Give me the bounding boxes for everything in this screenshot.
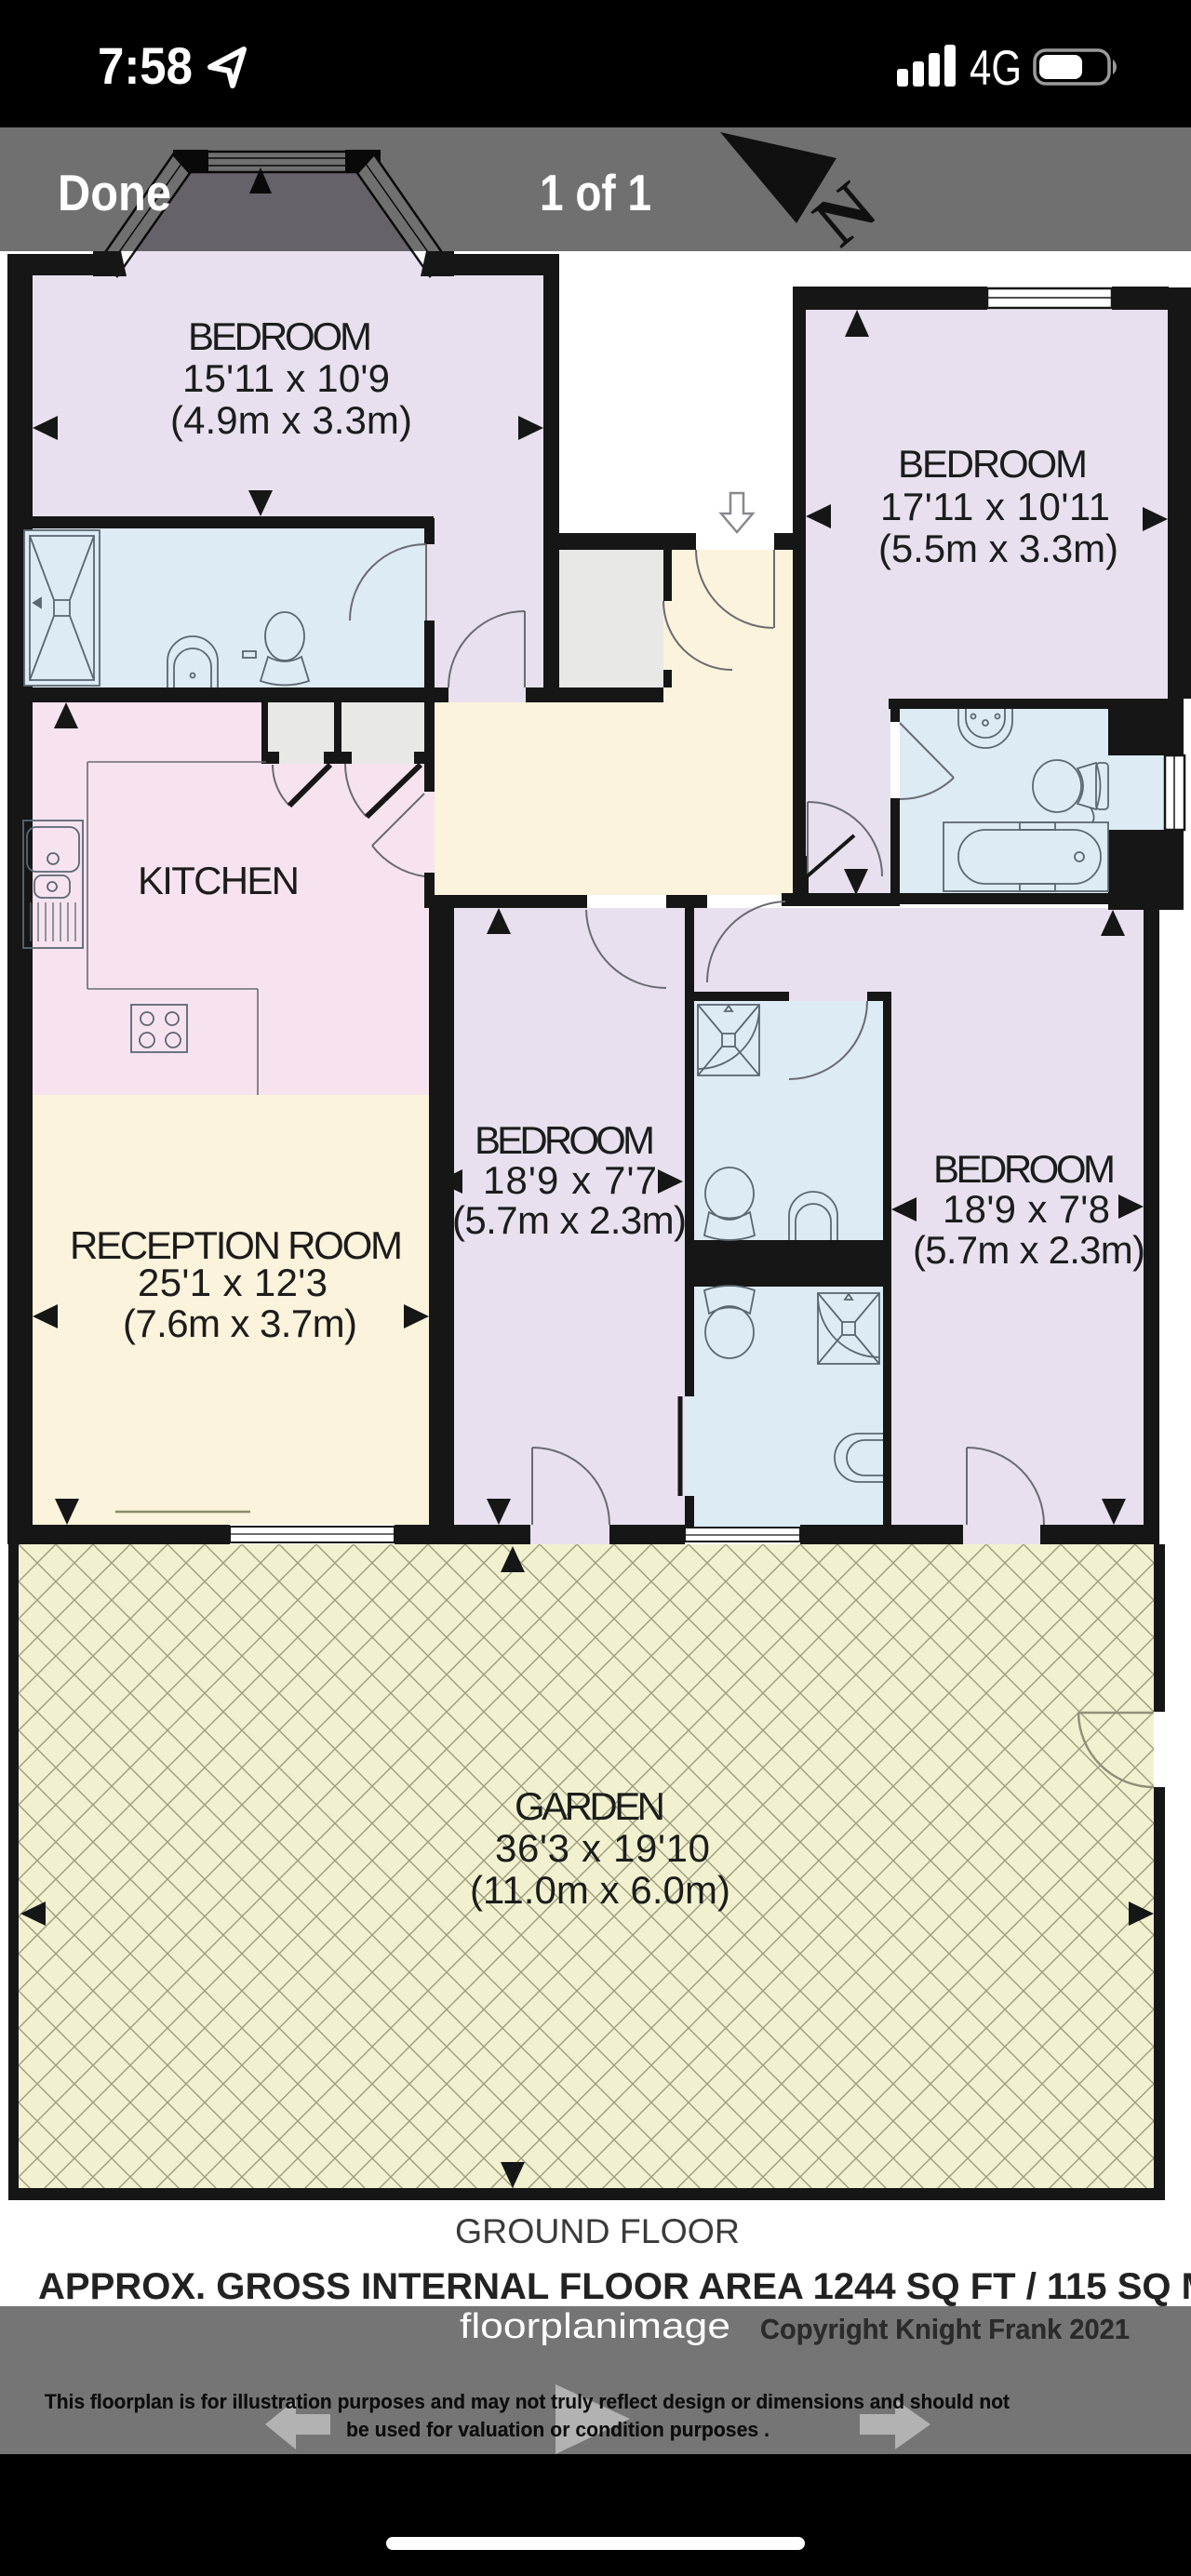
svg-text:7:58: 7:58 xyxy=(98,36,193,95)
svg-text:(5.7m x 2.3m): (5.7m x 2.3m) xyxy=(913,1228,1145,1272)
svg-text:floorplanimage: floorplanimage xyxy=(460,2307,730,2346)
svg-text:Done: Done xyxy=(58,164,171,221)
svg-text:KITCHEN: KITCHEN xyxy=(138,859,300,902)
svg-text:(5.5m x 3.3m): (5.5m x 3.3m) xyxy=(878,527,1118,570)
svg-text:25'1 x 12'3: 25'1 x 12'3 xyxy=(138,1261,328,1304)
svg-text:be used for valuation or condi: be used for valuation or condition purpo… xyxy=(346,2418,769,2441)
svg-text:4G: 4G xyxy=(970,41,1022,96)
svg-text:17'11 x 10'11: 17'11 x 10'11 xyxy=(880,485,1110,528)
svg-text:1 of 1: 1 of 1 xyxy=(540,164,651,221)
svg-text:(5.7m x 2.3m): (5.7m x 2.3m) xyxy=(452,1198,687,1242)
svg-text:GARDEN: GARDEN xyxy=(515,1784,665,1828)
svg-text:(11.0m x 6.0m): (11.0m x 6.0m) xyxy=(470,1868,730,1912)
svg-text:(7.6m x 3.7m): (7.6m x 3.7m) xyxy=(123,1301,357,1345)
svg-text:BEDROOM: BEDROOM xyxy=(898,442,1088,486)
svg-text:36'3 x 19'10: 36'3 x 19'10 xyxy=(495,1826,710,1870)
svg-text:(4.9m x 3.3m): (4.9m x 3.3m) xyxy=(170,398,412,442)
svg-text:Copyright Knight Frank 2021: Copyright Knight Frank 2021 xyxy=(760,2313,1130,2345)
svg-text:15'11 x 10'9: 15'11 x 10'9 xyxy=(182,356,390,400)
svg-text:BEDROOM: BEDROOM xyxy=(933,1147,1116,1191)
svg-text:This floorplan is for illustra: This floorplan is for illustration purpo… xyxy=(45,2390,1010,2413)
svg-text:18'9 x 7'7: 18'9 x 7'7 xyxy=(483,1158,657,1202)
svg-text:BEDROOM: BEDROOM xyxy=(188,314,372,358)
svg-text:APPROX. GROSS INTERNAL FLOOR A: APPROX. GROSS INTERNAL FLOOR AREA 1244 S… xyxy=(38,2266,1191,2307)
svg-text:GROUND FLOOR: GROUND FLOOR xyxy=(455,2212,740,2250)
svg-text:BEDROOM: BEDROOM xyxy=(475,1118,655,1162)
svg-text:18'9 x 7'8: 18'9 x 7'8 xyxy=(943,1187,1110,1231)
